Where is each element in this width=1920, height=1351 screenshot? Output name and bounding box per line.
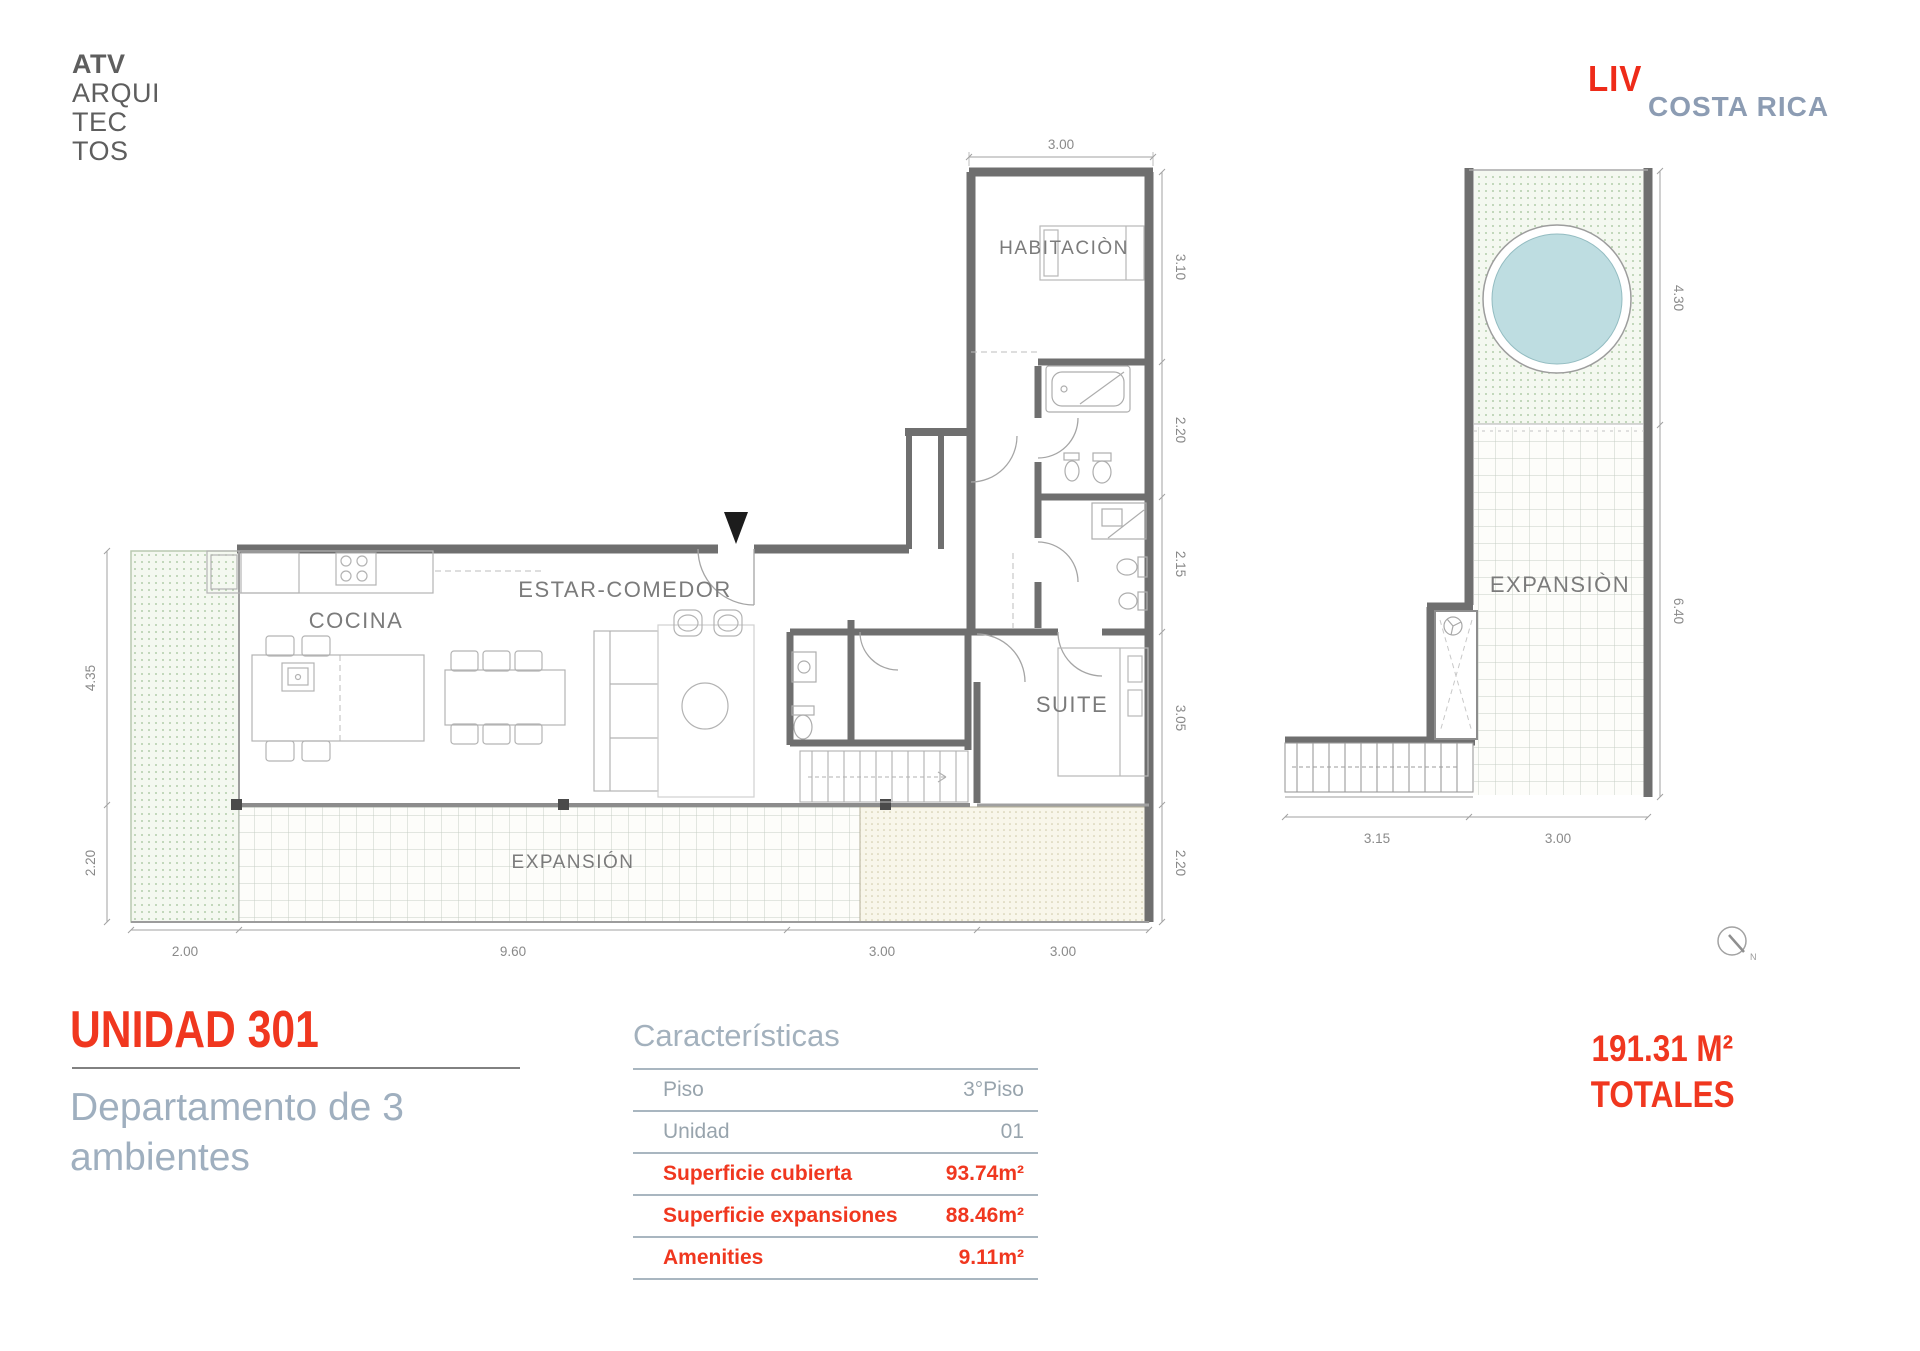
compass-icon: N — [1718, 927, 1757, 962]
dim-label: 3.00 — [1048, 137, 1074, 152]
amenity-stairs — [1285, 743, 1473, 797]
room-label-expansion: EXPANSIÓN — [512, 851, 635, 873]
amenity-plan: EXPANSIÒN 4.30 6.40 3.15 3.00 N — [1282, 168, 1757, 962]
shaft — [1435, 611, 1477, 739]
row-value: 3°Piso — [963, 1078, 1038, 1102]
row-label: Piso — [633, 1078, 704, 1102]
characteristics-panel: Características Piso 3°Piso Unidad 01 Su… — [633, 1018, 1038, 1280]
main-plan: HABITACIÒN ESTAR-COMEDOR COCINA SUITE EX… — [83, 137, 1188, 959]
dim-label: 2.00 — [172, 944, 198, 959]
unit-subtitle-line: ambientes — [70, 1133, 404, 1183]
dim-label: 2.20 — [1173, 417, 1188, 443]
dim-label: 2.20 — [83, 850, 98, 876]
dim-label: 2.15 — [1173, 551, 1188, 577]
room-label-cocina: COCINA — [309, 608, 404, 633]
room-label-habitacion: HABITACIÒN — [999, 237, 1129, 259]
dim-label: 6.40 — [1671, 598, 1686, 624]
room-label-estar-comedor: ESTAR-COMEDOR — [518, 577, 731, 602]
row-label: Unidad — [633, 1120, 730, 1144]
table-row: Piso 3°Piso — [633, 1068, 1038, 1110]
room-label-amenity-expansion: EXPANSIÒN — [1490, 572, 1630, 597]
row-value: 93.74m² — [946, 1162, 1038, 1186]
row-value: 88.46m² — [946, 1204, 1038, 1228]
totals-block: 191.31 M² TOTALES — [1570, 1028, 1755, 1116]
dim-label: 3.00 — [869, 944, 895, 959]
entry-arrow-icon — [724, 512, 748, 544]
dim-label: 3.15 — [1364, 831, 1390, 846]
dim-label: 3.10 — [1173, 254, 1188, 280]
total-area: 191.31 M² — [1592, 1028, 1734, 1070]
dim-label: 4.30 — [1671, 285, 1686, 311]
brochure-page: ATV ARQUI TEC TOS LIV COSTA RICA — [0, 0, 1920, 1351]
stairs — [800, 751, 968, 802]
table-row: Superficie cubierta 93.74m² — [633, 1152, 1038, 1194]
living-furniture — [594, 610, 754, 797]
dim-label: 9.60 — [500, 944, 526, 959]
terrace-strip — [131, 551, 239, 922]
powder-room-fixtures — [792, 652, 816, 739]
table-row: Amenities 9.11m² — [633, 1236, 1038, 1280]
row-value: 01 — [1001, 1120, 1038, 1144]
dim-label: 3.00 — [1545, 831, 1571, 846]
characteristics-heading: Características — [633, 1018, 1038, 1054]
row-label: Superficie expansiones — [633, 1204, 898, 1228]
characteristics-table: Piso 3°Piso Unidad 01 Superficie cubiert… — [633, 1068, 1038, 1280]
compass-north-label: N — [1750, 952, 1757, 962]
row-label: Superficie cubierta — [633, 1162, 852, 1186]
unit-subtitle-line: Departamento de 3 — [70, 1083, 404, 1133]
room-label-suite: SUITE — [1036, 692, 1108, 717]
title-rule — [72, 1067, 520, 1069]
pool-icon — [1492, 234, 1622, 364]
dim-label: 3.00 — [1050, 944, 1076, 959]
bathroom-fixtures — [1046, 366, 1147, 610]
dim-label: 3.05 — [1173, 705, 1188, 731]
dim-label: 4.35 — [83, 665, 98, 691]
unit-title: UNIDAD 301 — [70, 1000, 319, 1060]
room-labels: HABITACIÒN ESTAR-COMEDOR COCINA SUITE EX… — [309, 237, 1129, 873]
kitchen-furniture — [207, 551, 433, 761]
amenity-terrace-tiles — [1474, 427, 1648, 795]
table-row: Superficie expansiones 88.46m² — [633, 1194, 1038, 1236]
row-value: 9.11m² — [959, 1246, 1038, 1270]
total-label: TOTALES — [1591, 1074, 1735, 1116]
unit-subtitle: Departamento de 3 ambientes — [70, 1083, 404, 1183]
dim-label: 2.20 — [1173, 850, 1188, 876]
row-label: Amenities — [633, 1246, 763, 1270]
terrace-dotted — [860, 807, 1149, 922]
dining-furniture — [445, 651, 565, 744]
table-row: Unidad 01 — [633, 1110, 1038, 1152]
